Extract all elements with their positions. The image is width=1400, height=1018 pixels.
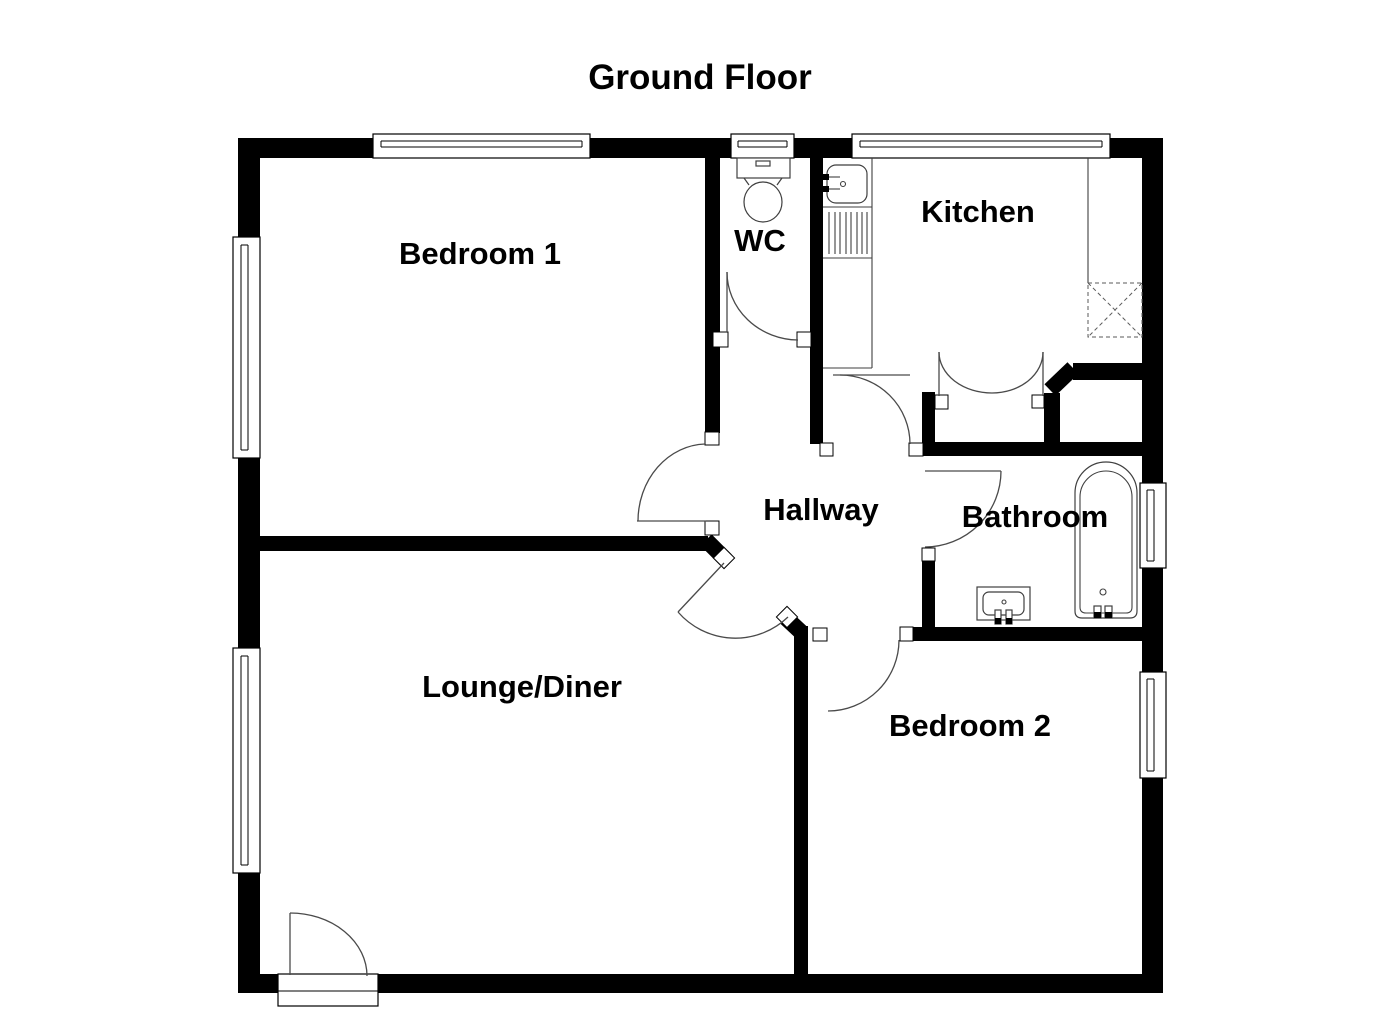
post-kitchen-door-left bbox=[820, 443, 833, 456]
front-door-threshold bbox=[278, 974, 378, 1006]
window-bedroom1-left bbox=[233, 237, 260, 458]
wall-lounge-bedroom2-divider bbox=[794, 626, 808, 974]
door-wc bbox=[727, 272, 798, 340]
kitchen-sink-icon bbox=[821, 165, 867, 203]
wall-bottom-left bbox=[238, 974, 278, 993]
post-cupboard-right bbox=[1032, 395, 1044, 408]
label-bedroom1: Bedroom 1 bbox=[399, 236, 561, 271]
wall-bedroom1-lounge-divider bbox=[258, 536, 708, 551]
window-kitchen-top bbox=[852, 134, 1110, 158]
post-bathroom-door-bottom bbox=[922, 548, 935, 561]
wall-diagonal-kitchen-nook bbox=[1050, 368, 1073, 390]
wall-bedroom1-east bbox=[705, 158, 720, 433]
cupboard-double-doors bbox=[939, 352, 1043, 396]
post-bedroom2-door-left bbox=[813, 628, 827, 641]
wall-cupboard-east-stub bbox=[1044, 393, 1060, 455]
door-kitchen bbox=[833, 375, 910, 444]
window-bedroom1-top bbox=[373, 134, 590, 158]
outer-walls bbox=[238, 138, 1163, 993]
post-wc-door-right bbox=[797, 332, 811, 347]
wash-basin-icon bbox=[977, 587, 1030, 624]
window-bedroom2-right bbox=[1140, 672, 1166, 778]
wall-bathroom-south bbox=[913, 627, 1142, 641]
floor-plan-svg: Ground Floor Bedroom 1 WC Kitchen Hallwa… bbox=[0, 0, 1400, 1018]
door-lounge bbox=[678, 563, 788, 638]
post-kitchen-door-right bbox=[909, 443, 923, 456]
interior-walls bbox=[258, 158, 1142, 974]
label-bathroom: Bathroom bbox=[962, 499, 1108, 534]
tap-icon bbox=[821, 186, 829, 192]
bathtub-icon bbox=[1075, 462, 1137, 618]
window-bathroom-right bbox=[1140, 483, 1166, 568]
label-kitchen: Kitchen bbox=[921, 194, 1035, 229]
toilet-icon bbox=[737, 158, 790, 222]
wall-kitchen-nook-top bbox=[1073, 363, 1142, 380]
label-lounge-diner: Lounge/Diner bbox=[422, 669, 622, 704]
post-bedroom1-door-bottom bbox=[705, 521, 719, 535]
wall-bottom-right bbox=[377, 974, 1163, 993]
post-cupboard-left bbox=[935, 395, 948, 409]
label-bedroom2: Bedroom 2 bbox=[889, 708, 1051, 743]
label-hallway: Hallway bbox=[763, 492, 879, 527]
window-wc-top bbox=[731, 134, 794, 158]
tap-icon bbox=[821, 174, 829, 180]
draining-board bbox=[829, 212, 867, 254]
label-wc: WC bbox=[734, 223, 786, 258]
appliance-space-icon bbox=[1088, 283, 1142, 337]
kitchen-fixtures bbox=[821, 158, 1142, 368]
bathroom-fixtures bbox=[977, 462, 1137, 624]
page-title: Ground Floor bbox=[588, 58, 812, 97]
post-bedroom1-door-top bbox=[705, 432, 719, 445]
front-door bbox=[278, 913, 378, 1006]
floor-plan: Ground Floor Bedroom 1 WC Kitchen Hallwa… bbox=[0, 0, 1400, 1018]
door-bedroom2 bbox=[828, 640, 899, 711]
wall-hallway-north bbox=[922, 442, 1142, 456]
post-wc-door-left bbox=[713, 332, 728, 347]
wall-wc-east bbox=[810, 158, 823, 444]
window-lounge-left bbox=[233, 648, 260, 873]
post-bedroom2-door-right bbox=[900, 627, 913, 641]
door-bedroom1 bbox=[637, 444, 706, 521]
